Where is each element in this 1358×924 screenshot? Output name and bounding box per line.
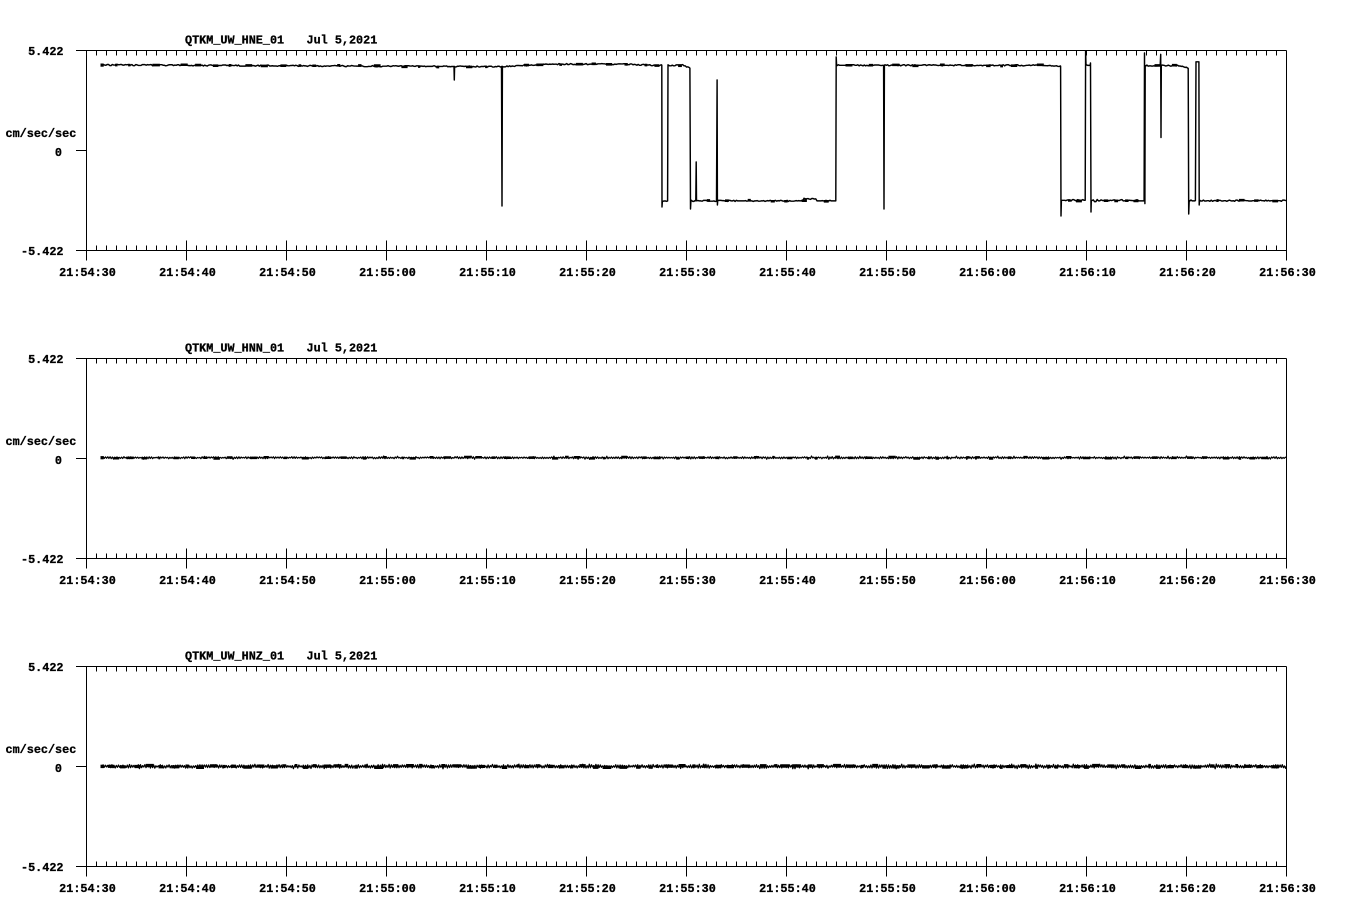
svg-text:21:55:10: 21:55:10 bbox=[459, 266, 516, 280]
svg-text:21:54:40: 21:54:40 bbox=[159, 882, 216, 896]
svg-text:-5.422: -5.422 bbox=[21, 553, 63, 567]
svg-text:21:55:00: 21:55:00 bbox=[359, 574, 416, 588]
svg-text:21:55:00: 21:55:00 bbox=[359, 266, 416, 280]
svg-text:21:54:40: 21:54:40 bbox=[159, 266, 216, 280]
svg-text:21:55:30: 21:55:30 bbox=[659, 574, 716, 588]
svg-text:5.422: 5.422 bbox=[28, 661, 63, 675]
svg-text:-5.422: -5.422 bbox=[21, 861, 63, 875]
svg-text:21:54:50: 21:54:50 bbox=[259, 266, 316, 280]
svg-text:21:55:40: 21:55:40 bbox=[759, 574, 816, 588]
svg-text:21:55:40: 21:55:40 bbox=[759, 882, 816, 896]
svg-text:21:55:30: 21:55:30 bbox=[659, 266, 716, 280]
svg-text:21:56:10: 21:56:10 bbox=[1059, 882, 1116, 896]
svg-text:21:54:50: 21:54:50 bbox=[259, 882, 316, 896]
svg-text:21:55:40: 21:55:40 bbox=[759, 266, 816, 280]
svg-text:QTKM_UW_HNE_01: QTKM_UW_HNE_01 bbox=[185, 34, 284, 48]
svg-text:21:55:10: 21:55:10 bbox=[459, 882, 516, 896]
svg-text:5.422: 5.422 bbox=[28, 45, 63, 59]
svg-text:21:55:50: 21:55:50 bbox=[859, 266, 916, 280]
svg-text:21:56:20: 21:56:20 bbox=[1159, 882, 1216, 896]
svg-text:21:56:30: 21:56:30 bbox=[1259, 882, 1316, 896]
svg-text:21:54:30: 21:54:30 bbox=[59, 266, 116, 280]
svg-text:21:56:00: 21:56:00 bbox=[959, 882, 1016, 896]
svg-text:0: 0 bbox=[55, 146, 62, 160]
svg-text:21:55:50: 21:55:50 bbox=[859, 574, 916, 588]
svg-text:21:55:00: 21:55:00 bbox=[359, 882, 416, 896]
svg-text:21:54:30: 21:54:30 bbox=[59, 882, 116, 896]
svg-text:21:55:50: 21:55:50 bbox=[859, 882, 916, 896]
svg-text:21:56:10: 21:56:10 bbox=[1059, 266, 1116, 280]
svg-text:QTKM_UW_HNN_01: QTKM_UW_HNN_01 bbox=[185, 342, 284, 356]
svg-text:21:56:20: 21:56:20 bbox=[1159, 574, 1216, 588]
svg-text:21:56:20: 21:56:20 bbox=[1159, 266, 1216, 280]
svg-text:21:54:50: 21:54:50 bbox=[259, 574, 316, 588]
svg-text:-5.422: -5.422 bbox=[21, 245, 63, 259]
svg-text:21:55:30: 21:55:30 bbox=[659, 882, 716, 896]
svg-text:Jul 5,2021: Jul 5,2021 bbox=[307, 34, 378, 48]
svg-text:21:56:00: 21:56:00 bbox=[959, 574, 1016, 588]
svg-text:cm/sec/sec: cm/sec/sec bbox=[6, 127, 77, 141]
svg-text:21:56:00: 21:56:00 bbox=[959, 266, 1016, 280]
svg-text:21:56:10: 21:56:10 bbox=[1059, 574, 1116, 588]
svg-text:21:56:30: 21:56:30 bbox=[1259, 574, 1316, 588]
svg-text:21:54:40: 21:54:40 bbox=[159, 574, 216, 588]
svg-text:cm/sec/sec: cm/sec/sec bbox=[6, 743, 77, 757]
svg-text:0: 0 bbox=[55, 454, 62, 468]
svg-text:Jul 5,2021: Jul 5,2021 bbox=[307, 650, 378, 664]
svg-text:cm/sec/sec: cm/sec/sec bbox=[6, 435, 77, 449]
svg-text:21:56:30: 21:56:30 bbox=[1259, 266, 1316, 280]
svg-text:Jul 5,2021: Jul 5,2021 bbox=[307, 342, 378, 356]
svg-text:QTKM_UW_HNZ_01: QTKM_UW_HNZ_01 bbox=[185, 650, 284, 664]
svg-text:21:54:30: 21:54:30 bbox=[59, 574, 116, 588]
svg-text:5.422: 5.422 bbox=[28, 353, 63, 367]
svg-text:0: 0 bbox=[55, 762, 62, 776]
svg-text:21:55:20: 21:55:20 bbox=[559, 574, 616, 588]
svg-text:21:55:20: 21:55:20 bbox=[559, 266, 616, 280]
svg-text:21:55:20: 21:55:20 bbox=[559, 882, 616, 896]
svg-text:21:55:10: 21:55:10 bbox=[459, 574, 516, 588]
